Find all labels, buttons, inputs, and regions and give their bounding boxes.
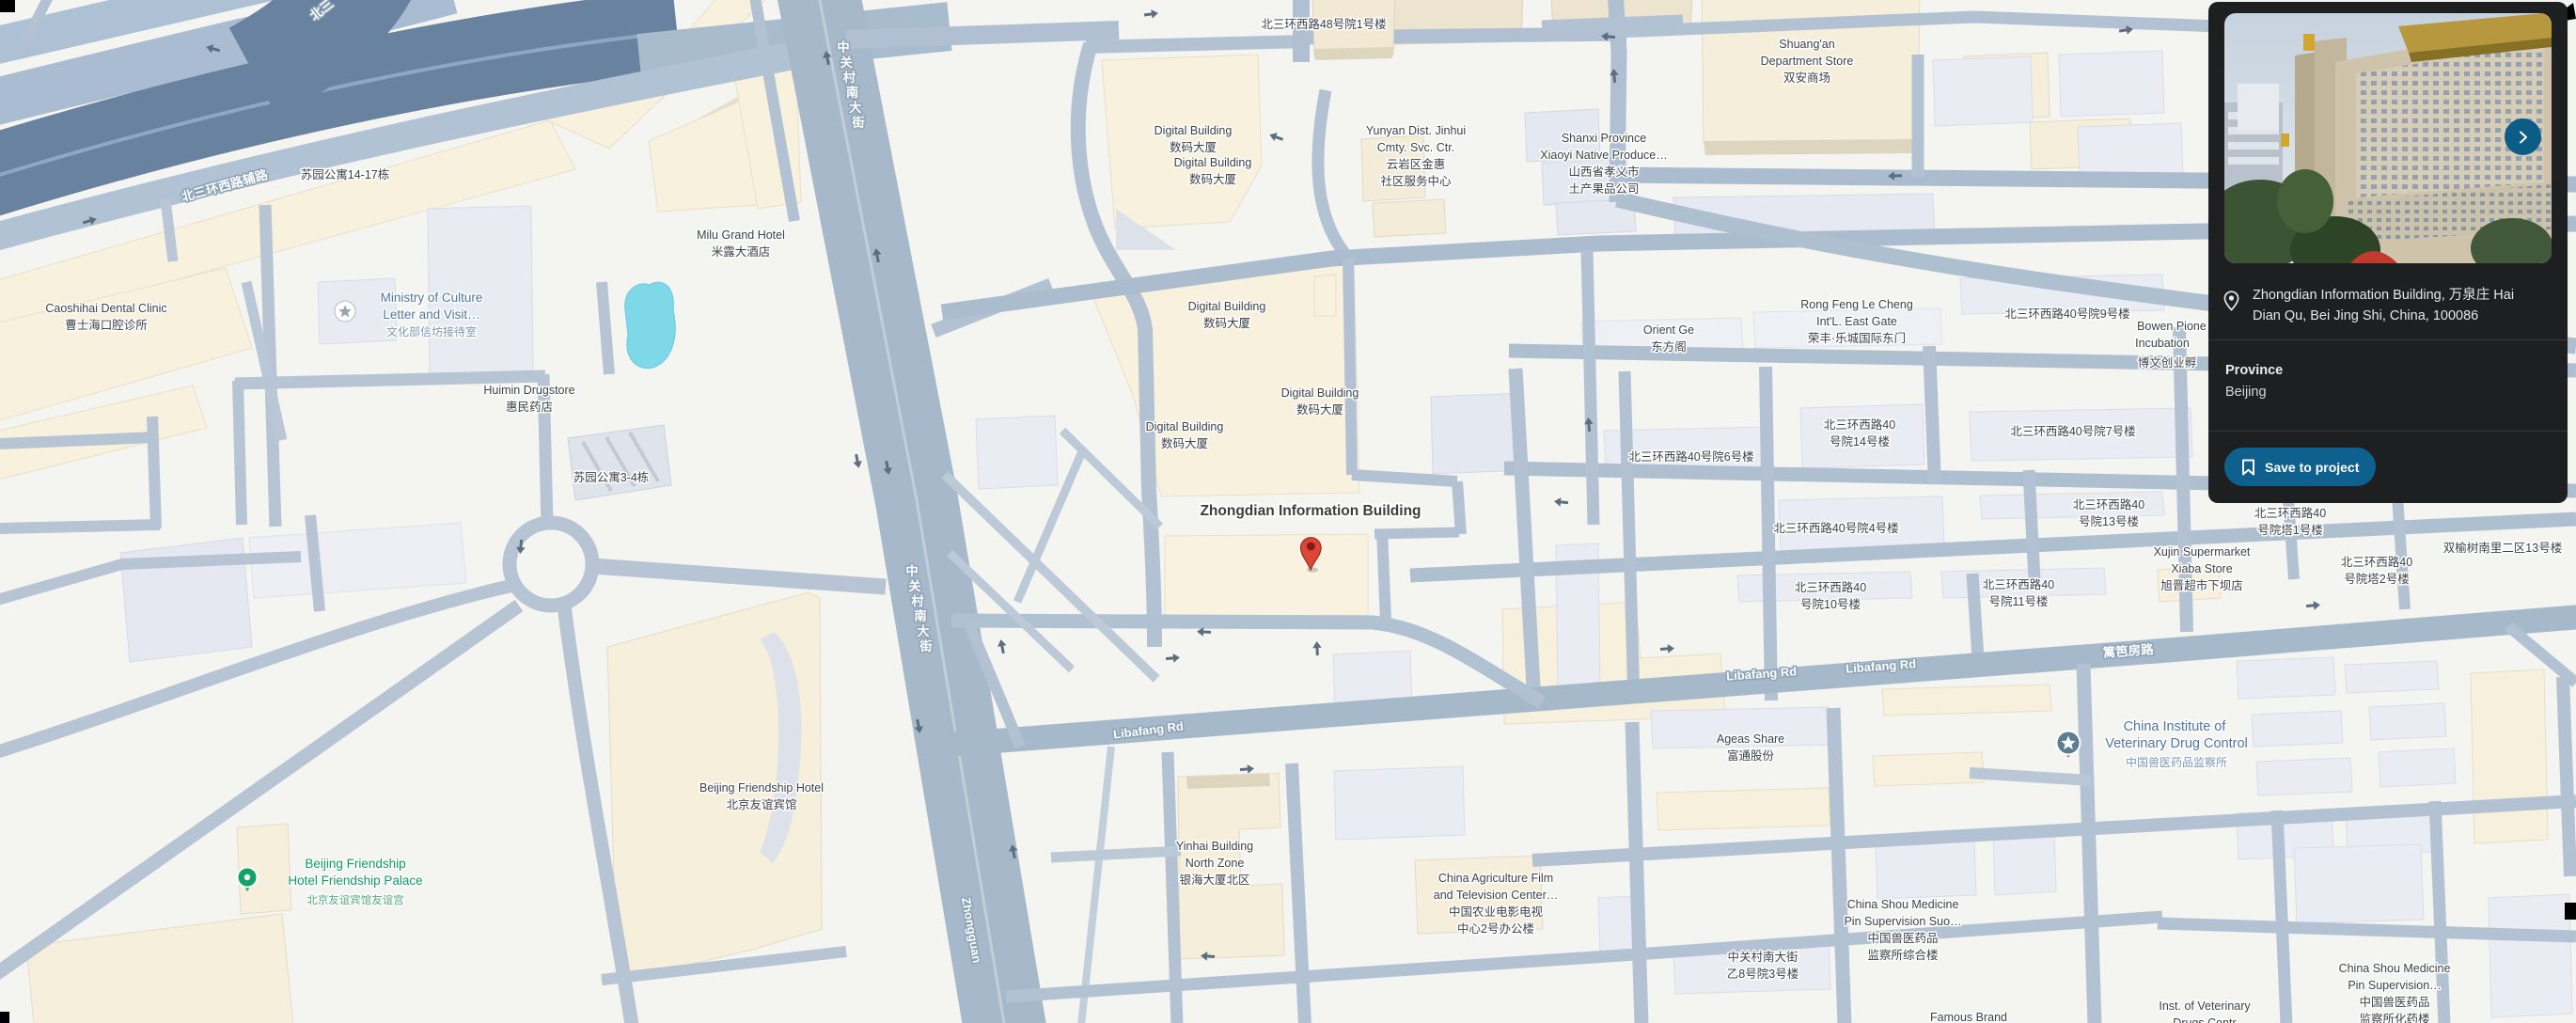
- svg-text:Yinhai Building: Yinhai Building: [1176, 840, 1253, 853]
- svg-text:数码大厦: 数码大厦: [1203, 316, 1250, 330]
- svg-text:Digital Building: Digital Building: [1188, 300, 1266, 313]
- svg-text:Beijing Friendship Hotel: Beijing Friendship Hotel: [699, 781, 824, 795]
- svg-text:Inst. of Veterinary: Inst. of Veterinary: [2159, 999, 2251, 1013]
- svg-text:荣丰·乐城国际东门: 荣丰·乐城国际东门: [1808, 331, 1906, 345]
- svg-text:Zhongdian Information Building: Zhongdian Information Building: [1200, 503, 1421, 519]
- svg-text:号院10号楼: 号院10号楼: [1800, 597, 1861, 611]
- svg-text:北三环西路40号院4号楼: 北三环西路40号院4号楼: [1773, 521, 1898, 535]
- svg-text:Shuang'an: Shuang'an: [1779, 38, 1834, 51]
- svg-text:富通股份: 富通股份: [1727, 748, 1775, 763]
- svg-text:北京友谊宾馆友谊宫: 北京友谊宾馆友谊宫: [306, 893, 404, 906]
- svg-text:Digital Building: Digital Building: [1154, 124, 1233, 137]
- svg-text:云岩区金惠: 云岩区金惠: [1387, 157, 1446, 171]
- svg-text:东方阁: 东方阁: [1651, 339, 1687, 354]
- svg-text:Orient Ge: Orient Ge: [1643, 323, 1694, 337]
- svg-text:Int'L. East Gate: Int'L. East Gate: [1816, 315, 1897, 328]
- svg-text:China Agriculture Film: China Agriculture Film: [1438, 872, 1553, 885]
- svg-text:苏园公寓14-17栋: 苏园公寓14-17栋: [301, 167, 389, 181]
- svg-text:数码大厦: 数码大厦: [1296, 402, 1343, 417]
- svg-text:数码大厦: 数码大厦: [1161, 436, 1208, 450]
- svg-text:Huimin Drugstore: Huimin Drugstore: [483, 384, 574, 397]
- svg-text:Milu Grand Hotel: Milu Grand Hotel: [697, 228, 785, 242]
- svg-text:土产果品公司: 土产果品公司: [1568, 182, 1639, 196]
- svg-text:中国兽医药品: 中国兽医药品: [2359, 995, 2429, 1009]
- svg-text:Bowen Pione: Bowen Pione: [2137, 320, 2207, 333]
- svg-text:北三环西路40: 北三环西路40: [2341, 555, 2412, 569]
- svg-text:乙8号院3号楼: 乙8号院3号楼: [1727, 967, 1798, 981]
- svg-text:Digital Building: Digital Building: [1146, 420, 1224, 433]
- svg-text:Xujin Supermarket: Xujin Supermarket: [2154, 545, 2251, 559]
- svg-text:Ageas Share: Ageas Share: [1717, 732, 1784, 746]
- svg-text:北三环西路40号院9号楼: 北三环西路40号院9号楼: [2004, 307, 2129, 321]
- svg-text:Drugs Contr: Drugs Contr: [2173, 1016, 2236, 1023]
- svg-text:北三环西路40: 北三环西路40: [1824, 417, 1895, 432]
- svg-text:Incubation: Incubation: [2135, 337, 2190, 350]
- svg-text:数码大厦: 数码大厦: [1189, 172, 1236, 186]
- svg-text:Department Store: Department Store: [1761, 55, 1854, 68]
- svg-text:数码大厦: 数码大厦: [1170, 140, 1217, 154]
- svg-text:苏园公寓3-4栋: 苏园公寓3-4栋: [573, 470, 650, 484]
- svg-text:北三环西路40: 北三环西路40: [1983, 577, 2054, 591]
- svg-text:Letter and Visit…: Letter and Visit…: [383, 307, 479, 322]
- svg-text:北三环西路40号院6号楼: 北三环西路40号院6号楼: [1628, 449, 1753, 464]
- svg-text:中关村南大街: 中关村南大街: [1727, 950, 1798, 964]
- svg-text:Xiaba Store: Xiaba Store: [2171, 562, 2232, 575]
- svg-text:Veterinary Drug Control: Veterinary Drug Control: [2105, 736, 2248, 751]
- svg-text:曹士海口腔诊所: 曹士海口腔诊所: [65, 318, 148, 332]
- svg-text:Pin Supervision…: Pin Supervision…: [2348, 979, 2441, 992]
- svg-text:文化部信坊接待室: 文化部信坊接待室: [386, 324, 477, 338]
- svg-text:米露大酒店: 米露大酒店: [712, 245, 771, 259]
- svg-text:Beijing Friendship: Beijing Friendship: [305, 857, 405, 871]
- svg-text:号院11号楼: 号院11号楼: [1989, 594, 2049, 608]
- svg-text:North Zone: North Zone: [1186, 857, 1245, 870]
- svg-text:北三环西路40: 北三环西路40: [2073, 497, 2144, 511]
- svg-text:中心2号办公楼: 中心2号办公楼: [1457, 921, 1534, 936]
- svg-text:北京友谊宾馆: 北京友谊宾馆: [726, 797, 796, 811]
- svg-text:双榆树南里二区13号楼: 双榆树南里二区13号楼: [2443, 541, 2562, 555]
- svg-text:and Television Center…: and Television Center…: [1434, 889, 1558, 902]
- svg-text:监察所化药楼: 监察所化药楼: [2359, 1012, 2429, 1023]
- svg-text:Cmty. Svc. Ctr.: Cmty. Svc. Ctr.: [1377, 141, 1454, 154]
- svg-text:号院塔1号楼: 号院塔1号楼: [2257, 523, 2322, 537]
- svg-text:惠民药店: 惠民药店: [506, 401, 553, 414]
- svg-text:Shanxi Province: Shanxi Province: [1562, 132, 1646, 145]
- svg-text:Rong Feng Le Cheng: Rong Feng Le Cheng: [1800, 298, 1913, 311]
- svg-text:Xiaoyi Native Produce…: Xiaoyi Native Produce…: [1540, 149, 1667, 162]
- svg-text:China Institute of: China Institute of: [2124, 719, 2227, 734]
- svg-text:China Shou Medicine: China Shou Medicine: [2339, 962, 2451, 975]
- svg-text:号院14号楼: 号院14号楼: [1830, 434, 1890, 449]
- svg-text:双安商场: 双安商场: [1783, 71, 1830, 85]
- svg-text:Ministry of Culture: Ministry of Culture: [381, 291, 483, 305]
- svg-text:中国农业电影电视: 中国农业电影电视: [1449, 905, 1544, 919]
- svg-text:号院塔2号楼: 号院塔2号楼: [2344, 572, 2409, 586]
- svg-text:旭晋超市下坝店: 旭晋超市下坝店: [2160, 578, 2243, 592]
- svg-text:Caoshihai Dental Clinic: Caoshihai Dental Clinic: [45, 302, 166, 315]
- svg-text:银海大厦北区: 银海大厦北区: [1179, 873, 1249, 887]
- svg-text:中国兽医药品监察所: 中国兽医药品监察所: [2126, 755, 2227, 769]
- svg-text:博文创业孵: 博文创业孵: [2138, 355, 2197, 370]
- svg-text:监察所综合楼: 监察所综合楼: [1867, 948, 1938, 962]
- svg-text:中国兽医药品: 中国兽医药品: [1867, 931, 1938, 945]
- svg-text:Pin Supervision Suo…: Pin Supervision Suo…: [1844, 915, 1961, 928]
- svg-text:北三环西路40: 北三环西路40: [2254, 506, 2326, 520]
- svg-text:Famous Brand: Famous Brand: [1930, 1011, 2007, 1023]
- svg-text:Digital Building: Digital Building: [1281, 386, 1359, 400]
- svg-text:北三环西路40号院7号楼: 北三环西路40号院7号楼: [2010, 424, 2135, 438]
- svg-text:Digital Building: Digital Building: [1174, 156, 1252, 169]
- svg-text:山西省孝义市: 山西省孝义市: [1568, 165, 1639, 179]
- svg-text:北三环西路48号院1号楼: 北三环西路48号院1号楼: [1261, 17, 1386, 31]
- svg-text:社区服务中心: 社区服务中心: [1380, 174, 1452, 188]
- svg-text:北三环西路40: 北三环西路40: [1795, 580, 1866, 594]
- svg-text:Hotel Friendship Palace: Hotel Friendship Palace: [288, 873, 422, 888]
- svg-text:Yunyan Dist. Jinhui: Yunyan Dist. Jinhui: [1366, 124, 1466, 137]
- svg-text:China Shou Medicine: China Shou Medicine: [1847, 898, 1959, 911]
- svg-text:号院13号楼: 号院13号楼: [2079, 514, 2139, 528]
